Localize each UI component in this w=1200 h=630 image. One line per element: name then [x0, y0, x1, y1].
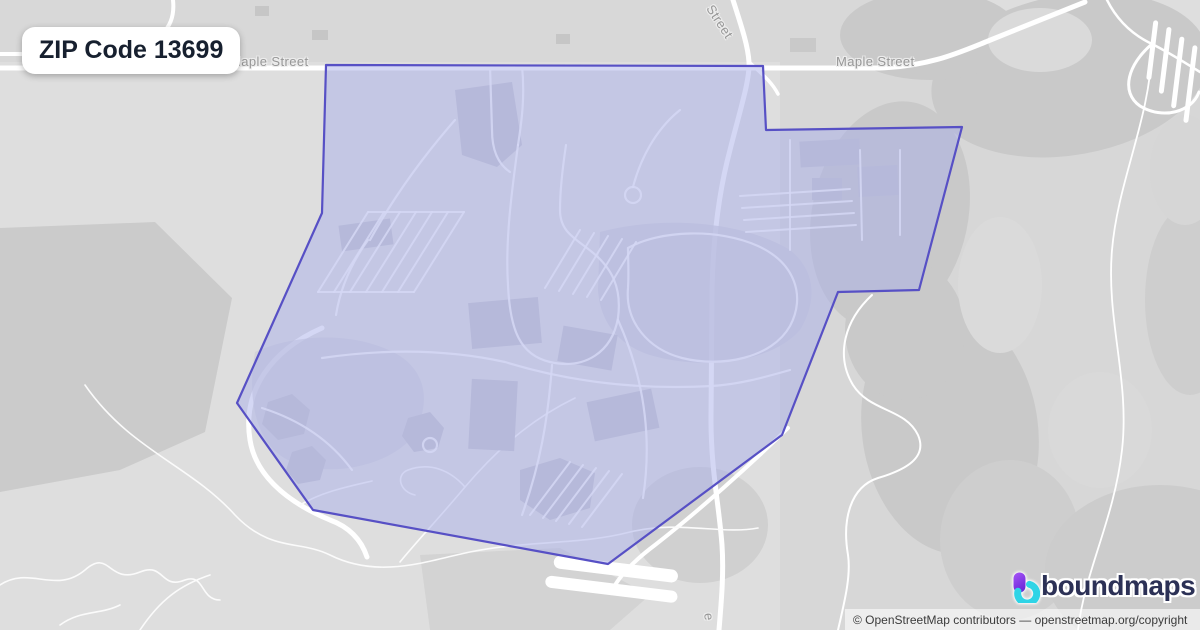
street-label-maple-left: Maple Street	[230, 54, 309, 69]
boundmaps-logo: boundmaps	[1013, 570, 1195, 603]
street-label-vertical-bottom: e	[701, 612, 717, 621]
street-label-maple-right: Maple Street	[836, 54, 915, 69]
osm-attribution: © OpenStreetMap contributors — openstree…	[845, 609, 1200, 630]
boundmaps-logo-text: boundmaps	[1041, 570, 1195, 602]
boundmaps-logo-icon	[1013, 572, 1040, 603]
map-canvas[interactable]	[0, 0, 1200, 630]
zip-code-pill: ZIP Code 13699	[22, 27, 240, 74]
map-screenshot: Maple Street Maple Street Street e ZIP C…	[0, 0, 1200, 630]
